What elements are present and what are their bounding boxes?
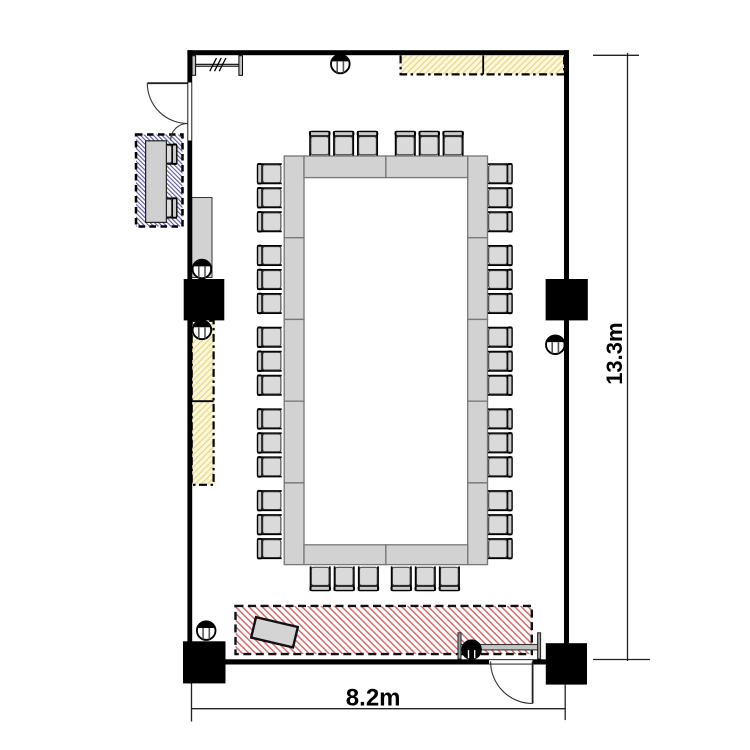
- svg-text:8.2m: 8.2m: [346, 685, 401, 712]
- svg-text:13.3m: 13.3m: [602, 322, 627, 384]
